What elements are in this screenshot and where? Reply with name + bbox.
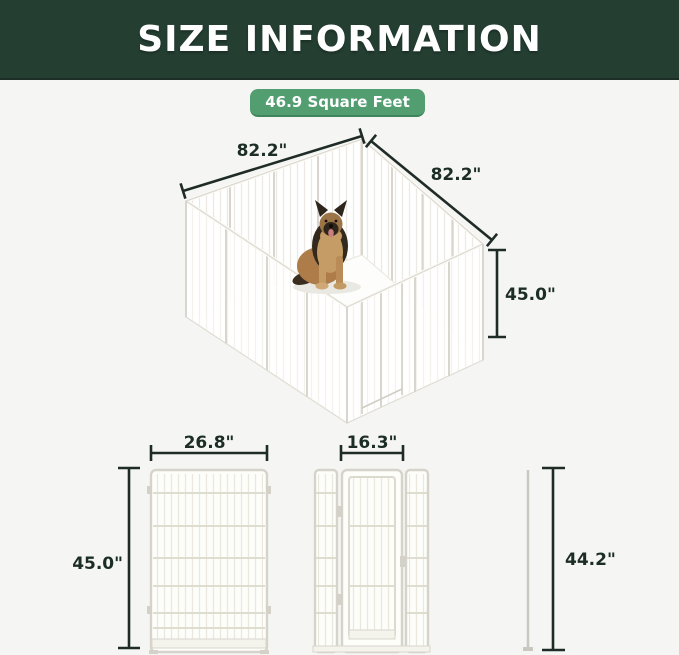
iso-height-label: 45.0"	[505, 285, 556, 305]
size-information-page: SIZE INFORMATION 46.9 Square Feet	[0, 0, 679, 655]
iso-depth-label: 82.2"	[431, 165, 482, 185]
door-width-label: 16.3"	[347, 433, 398, 453]
panel-side-profile: 44.2"	[523, 468, 616, 651]
header-band: SIZE INFORMATION	[0, 0, 679, 80]
door-panel-front-view: 16.3"	[313, 433, 430, 652]
dimension-iso-height: 45.0"	[488, 250, 556, 337]
iso-width-label: 82.2"	[237, 141, 288, 161]
area-badge: 46.9 Square Feet	[250, 89, 425, 117]
dimension-panel-width: 26.8"	[151, 433, 267, 461]
dimension-profile-height: 44.2"	[542, 468, 616, 650]
isometric-pen-illustration: 82.2" 82.2" 45.0"	[181, 128, 556, 423]
door-latch	[400, 556, 406, 567]
panel-width-label: 26.8"	[184, 433, 235, 453]
door-hinge-top	[337, 506, 343, 517]
panel-height-label: 45.0"	[72, 554, 123, 574]
dimension-door-width: 16.3"	[341, 433, 403, 461]
door-hinge-bottom	[337, 594, 343, 605]
profile-height-label: 44.2"	[565, 550, 616, 570]
page-title: SIZE INFORMATION	[137, 19, 542, 60]
dimension-panel-height: 45.0"	[72, 468, 140, 648]
full-panel-front-view: 26.8" 45.0"	[72, 433, 271, 654]
